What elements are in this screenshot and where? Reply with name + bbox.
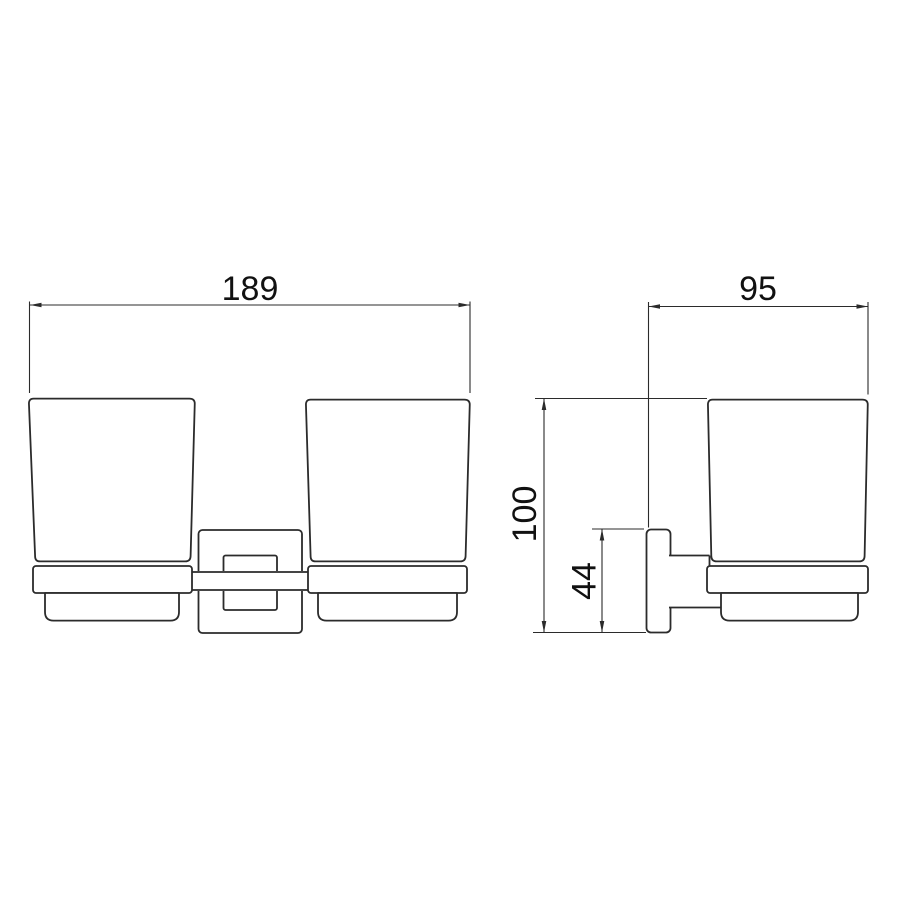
technical-drawing-canvas: 189 95	[0, 0, 900, 900]
side-cup	[708, 400, 868, 562]
right-holder-band	[308, 566, 467, 593]
side-holder-band	[707, 566, 868, 593]
arrowhead-left	[30, 303, 42, 308]
side-view: 95 100 44	[506, 270, 868, 633]
arrowhead-bottom	[542, 621, 547, 633]
dimension-189-label: 189	[222, 270, 279, 308]
dimension-44: 44	[566, 529, 645, 633]
connecting-bar-body	[193, 571, 307, 591]
left-holder-band	[33, 566, 192, 593]
front-view: 189	[29, 270, 470, 633]
left-holder-ring	[45, 593, 179, 621]
arrowhead-left	[649, 304, 661, 309]
dimension-44-label: 44	[566, 562, 604, 600]
arrowhead-right	[857, 304, 869, 309]
arrowhead-top	[542, 399, 547, 411]
arrowhead-bottom	[600, 621, 605, 633]
dimension-100-label: 100	[506, 486, 544, 543]
arrowhead-top	[600, 529, 605, 541]
left-cup	[29, 399, 195, 562]
arrowhead-right	[459, 303, 471, 308]
right-holder-ring	[318, 593, 457, 621]
right-cup	[306, 400, 470, 562]
dimension-189: 189	[30, 270, 471, 393]
drawing-page: 189 95	[0, 0, 900, 900]
side-holder-ring	[721, 593, 858, 621]
dimension-95-label: 95	[739, 270, 777, 308]
